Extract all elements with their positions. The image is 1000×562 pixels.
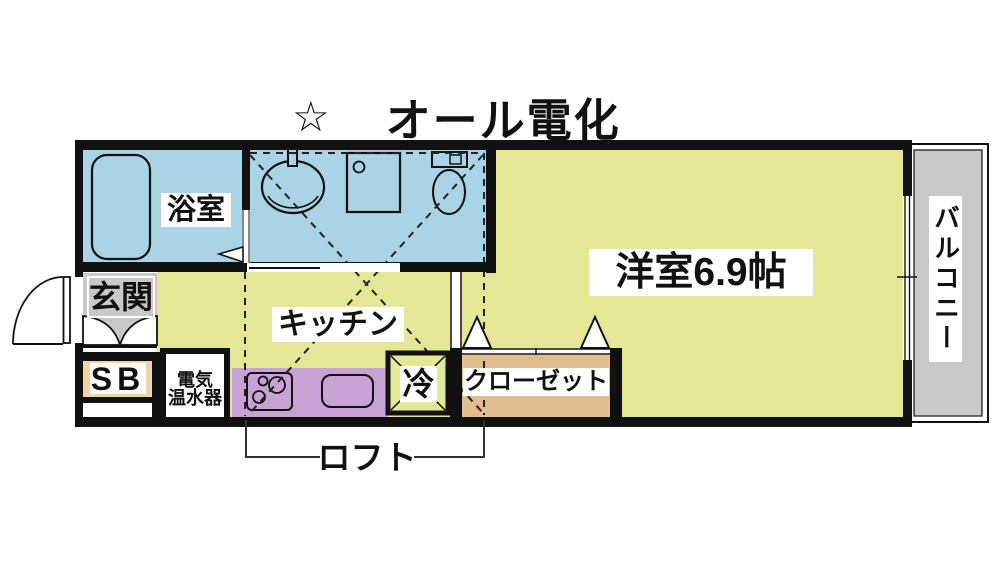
label-shoebox: SB xyxy=(90,363,146,394)
plan-title: ☆ オール電化 xyxy=(292,84,621,149)
label-water-heater: 電気 温水器 xyxy=(168,367,222,411)
star-icon: ☆ xyxy=(292,92,330,141)
wall-shoebox-top xyxy=(75,352,163,361)
wall-right-lower xyxy=(903,360,912,427)
label-fridge: 冷 xyxy=(400,366,437,402)
entrance-door xyxy=(13,277,83,344)
floorplan-image: ☆ オール電化 浴室 キッチン 洋室6.9帖 クローゼット 冷 玄関 SB 電気… xyxy=(0,0,1000,562)
wall-right-upper xyxy=(903,140,912,196)
wall-left-upper xyxy=(75,140,83,277)
plan-title-text: オール電化 xyxy=(386,84,621,149)
label-kitchen: キッチン xyxy=(272,307,404,342)
wall-closet-left xyxy=(450,348,462,427)
kitchen-room-opening xyxy=(450,272,462,348)
sanitary-sliding-door xyxy=(247,263,400,272)
label-closet: クローゼット xyxy=(463,368,609,396)
label-loft: ロフト xyxy=(321,438,413,476)
label-balcony: バルコニー xyxy=(929,196,962,362)
wall-sanitary-right xyxy=(486,140,496,273)
label-bathroom: 浴室 xyxy=(161,193,231,227)
wall-closet-right xyxy=(610,348,622,427)
label-western-room: 洋室6.9帖 xyxy=(589,249,813,296)
label-entrance: 玄関 xyxy=(87,276,155,318)
wall-bathroom-right xyxy=(242,150,250,210)
wall-shoebox-divider xyxy=(83,397,152,403)
